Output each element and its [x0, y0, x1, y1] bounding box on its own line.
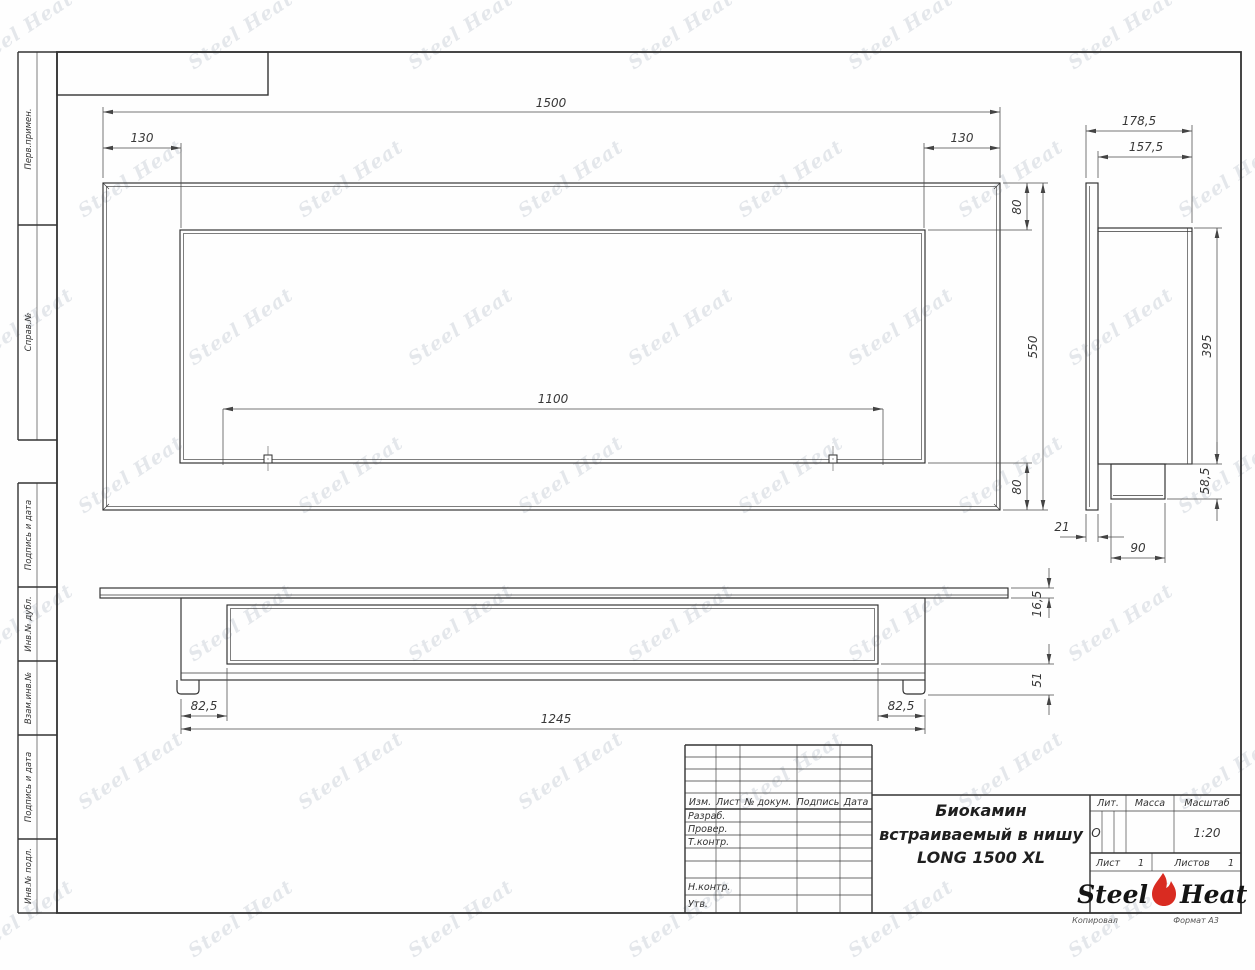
front-view-dimensions: 1500 130 130 1100 80 550 80	[103, 96, 1048, 510]
revision-col-podpis: Подпись	[797, 797, 840, 808]
stamp-label-inv-dubl: Инв.№ дубл.	[24, 596, 34, 651]
dim-body-height: 395	[1200, 335, 1214, 358]
lit-label: Лит.	[1096, 798, 1119, 809]
dim-left-inset: 130	[131, 131, 154, 145]
top-left-designation-box	[57, 52, 268, 95]
dim-opening-width: 1100	[538, 392, 569, 406]
stamp-label-sprav-no: Справ.№	[24, 313, 34, 352]
row-tkontr: Т.контр.	[688, 837, 729, 848]
stamp-label-podpis-data-1: Подпись и дата	[24, 500, 34, 570]
dim-overall-height: 550	[1026, 335, 1040, 358]
bottom-view-dimensions: 82,5 82,5 1245 16,5 51	[181, 568, 1054, 734]
left-margin-stamps: Перв.примен. Справ.№ Подпись и дата Инв.…	[18, 52, 57, 913]
row-nkontr: Н.контр.	[688, 882, 731, 893]
footer-format-label: Формат А3	[1173, 916, 1219, 925]
dim-overall-depth: 178,5	[1122, 114, 1156, 128]
front-view	[103, 183, 1000, 510]
drawing-sheet: Steel HeatSteel HeatSteel HeatSteel Heat…	[0, 0, 1255, 970]
dim-spigot-height: 58,5	[1198, 468, 1212, 495]
scale-label: Масштаб	[1184, 798, 1229, 809]
revision-col-docnum: № докум.	[744, 797, 792, 808]
logo-steel-text: Steel	[1077, 880, 1148, 909]
dim-body-length: 1245	[541, 712, 572, 726]
sheet-value: 1	[1138, 858, 1144, 869]
dim-overall-width: 1500	[536, 96, 567, 110]
stamp-label-perv-primen: Перв.примен.	[24, 108, 34, 169]
side-view-spigot	[1111, 464, 1165, 499]
side-view	[1086, 183, 1192, 510]
sheets-label: Листов	[1173, 858, 1210, 869]
row-razrab: Разраб.	[688, 811, 725, 822]
revision-col-data: Дата	[843, 797, 869, 808]
foot-right	[903, 680, 925, 694]
stamp-label-inv-podl: Инв.№ подл.	[24, 848, 34, 904]
sheets-value: 1	[1228, 858, 1234, 869]
technical-drawing-svg: Перв.примен. Справ.№ Подпись и дата Инв.…	[0, 0, 1255, 970]
sheet-frame	[57, 52, 1241, 913]
sheet-label: Лист	[1095, 858, 1121, 869]
dim-bottom-margin: 80	[1010, 479, 1024, 495]
doc-title-line1: Биокамин	[935, 801, 1026, 820]
doc-title-line2: встраиваемый в нишу	[879, 825, 1083, 844]
flame-icon	[1152, 873, 1176, 906]
dim-top-margin: 80	[1010, 199, 1024, 215]
footer-copied-label: Копировал	[1072, 916, 1118, 925]
dim-right-inset: 130	[951, 131, 974, 145]
bottom-view	[100, 588, 1008, 694]
steelheat-logo: Steel Heat	[1077, 873, 1248, 909]
lit-value: О	[1091, 826, 1100, 840]
dim-plate-thickness: 16,5	[1030, 591, 1044, 618]
dim-spigot-width: 90	[1130, 541, 1146, 555]
row-utv: Утв.	[688, 899, 708, 910]
dim-flange-thickness: 21	[1054, 520, 1069, 534]
stamp-label-podpis-data-2: Подпись и дата	[24, 752, 34, 822]
mass-label: Масса	[1135, 798, 1165, 809]
dim-bottom-left-inset: 82,5	[191, 699, 218, 713]
stamp-label-vzam-inv: Взам.инв.№	[24, 672, 34, 724]
foot-left	[177, 680, 199, 694]
row-prover: Провер.	[688, 824, 727, 835]
dim-body-depth: 157,5	[1129, 140, 1163, 154]
revision-col-izm: Изм.	[689, 797, 711, 808]
revision-col-list: Лист	[715, 797, 741, 808]
dim-bottom-right-inset: 82,5	[888, 699, 915, 713]
scale-value: 1:20	[1194, 826, 1221, 840]
logo-heat-text: Heat	[1179, 880, 1248, 909]
doc-title-line3: LONG 1500 XL	[917, 848, 1045, 867]
title-block: Изм. Лист № докум. Подпись Дата Разраб. …	[685, 745, 1248, 913]
dim-underside-height: 51	[1030, 672, 1044, 687]
